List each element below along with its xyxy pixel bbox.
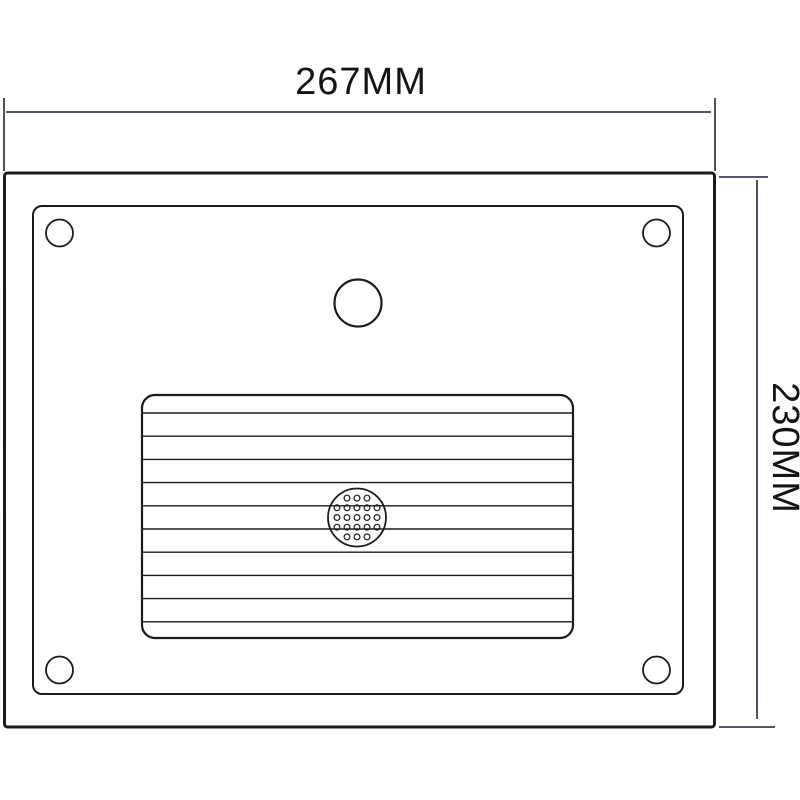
grille-hole — [364, 495, 370, 501]
grille-hole — [354, 515, 360, 521]
screw-hole — [643, 657, 670, 684]
ribbed-panel-outline — [142, 395, 573, 638]
grille-hole — [364, 515, 370, 521]
grille-hole — [344, 515, 350, 521]
screw-hole — [643, 220, 670, 247]
top-center-hole — [335, 280, 382, 327]
grille-hole — [344, 534, 350, 540]
height-dimension-label: 230MM — [763, 382, 800, 514]
screw-hole — [46, 220, 73, 247]
grille-hole — [354, 495, 360, 501]
dimension-diagram: 267MM 230MM — [0, 0, 800, 800]
screw-hole — [46, 657, 73, 684]
grille-hole — [374, 515, 380, 521]
grille-hole — [334, 515, 340, 521]
grille-hole — [344, 495, 350, 501]
grille-hole — [354, 534, 360, 540]
outer-outline — [5, 173, 715, 727]
drawing-svg — [0, 0, 800, 800]
grille-hole — [364, 534, 370, 540]
width-dimension-label: 267MM — [295, 62, 427, 104]
grille-circle — [328, 489, 386, 547]
